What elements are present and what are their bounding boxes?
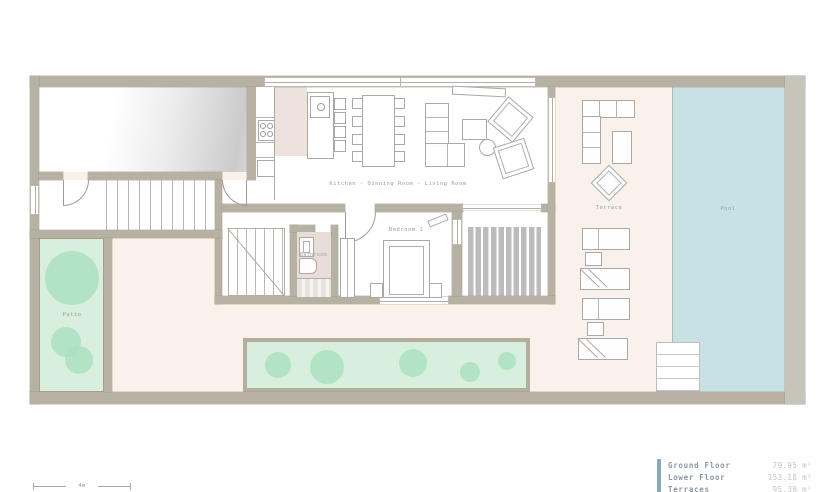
faucet bbox=[317, 103, 325, 111]
wall-left bbox=[30, 76, 39, 404]
driveway-ramp bbox=[39, 87, 247, 172]
sliding-door-terrace bbox=[463, 205, 541, 210]
cushion-line bbox=[426, 117, 448, 118]
sun-lounger-reclined bbox=[578, 338, 628, 360]
nightstand bbox=[370, 283, 383, 298]
patio-tree bbox=[45, 251, 99, 305]
legend-label: Terraces bbox=[668, 485, 710, 492]
garden-tree bbox=[310, 350, 344, 384]
label-patio: Patio bbox=[49, 312, 95, 319]
dining-chair bbox=[394, 116, 405, 127]
side-table bbox=[585, 252, 602, 266]
shower bbox=[297, 278, 331, 297]
wall-bottom bbox=[30, 392, 805, 404]
coffee-table bbox=[462, 119, 487, 140]
wall-right bbox=[785, 76, 805, 404]
garden-tree bbox=[460, 362, 480, 382]
window-bedroom-south bbox=[380, 297, 448, 304]
wall-bath-top bbox=[290, 225, 315, 232]
legend-label: Ground Floor bbox=[668, 461, 731, 470]
terrace-sofa-side bbox=[582, 116, 601, 164]
burner bbox=[267, 123, 273, 129]
burner bbox=[260, 123, 266, 129]
dining-table bbox=[362, 95, 395, 167]
counter-divider bbox=[256, 142, 274, 143]
legend-value: 95.38 m² bbox=[773, 485, 812, 492]
wall-bath-right bbox=[331, 225, 338, 296]
patio-tree bbox=[65, 346, 93, 374]
nightstand bbox=[429, 283, 442, 298]
sink-basin bbox=[303, 241, 310, 253]
bar-stool bbox=[334, 98, 346, 110]
dining-chair bbox=[394, 134, 405, 145]
dining-chair bbox=[394, 151, 405, 162]
wall-divider-a bbox=[222, 204, 345, 212]
cushion-line bbox=[426, 131, 448, 132]
cushion-line bbox=[616, 101, 617, 117]
sun-lounger bbox=[582, 228, 630, 250]
wardrobe bbox=[340, 238, 355, 298]
door-entry-leaf bbox=[63, 180, 64, 205]
door-hall-leaf bbox=[246, 180, 247, 205]
cushion-line bbox=[583, 132, 600, 133]
legend-label: Lower Floor bbox=[668, 473, 725, 482]
scale-bar-tick bbox=[33, 483, 34, 490]
legend-row: Lower Floor 153.18 m² bbox=[668, 472, 812, 483]
window-living-east bbox=[549, 98, 555, 182]
window-bedroom-east bbox=[453, 220, 461, 244]
floor-plan-page: Kitchen - Dinning Room - Living Room Bed… bbox=[0, 0, 819, 492]
cushion-line bbox=[599, 101, 600, 117]
stove bbox=[258, 120, 275, 141]
scale-bar-tick bbox=[130, 483, 131, 490]
wall-bath-left bbox=[290, 225, 297, 296]
cushion-line bbox=[583, 147, 600, 148]
bar-stool bbox=[334, 140, 346, 152]
kitchen-cabinet bbox=[257, 160, 275, 177]
wall-house-bottom-b bbox=[448, 296, 555, 304]
bed bbox=[383, 240, 430, 298]
wardrobe-rail bbox=[347, 239, 348, 297]
garden-tree bbox=[399, 349, 427, 377]
wall-entry-b bbox=[88, 172, 222, 180]
sun-lounger-reclined bbox=[580, 268, 630, 290]
sofa-vertical bbox=[425, 103, 449, 146]
side-table bbox=[587, 322, 604, 336]
entry-staircase bbox=[96, 180, 215, 230]
label-bathroom: Bathroom bbox=[291, 253, 336, 259]
garden-tree bbox=[498, 352, 516, 370]
wall-house-west-lower bbox=[215, 180, 222, 304]
kitchen-floor bbox=[274, 87, 307, 156]
cushion-line bbox=[447, 144, 448, 166]
legend-value: 153.18 m² bbox=[768, 473, 812, 482]
burner bbox=[267, 131, 273, 137]
label-pool: Pool bbox=[705, 206, 751, 213]
window-entry-west bbox=[31, 186, 38, 214]
burner bbox=[260, 131, 266, 137]
lounger-fold bbox=[598, 299, 599, 319]
garden-tree bbox=[265, 352, 291, 378]
pool-steps bbox=[656, 342, 700, 392]
toilet bbox=[299, 258, 317, 274]
wall-under-stairs bbox=[30, 230, 222, 238]
counter-divider bbox=[256, 117, 274, 118]
legend-value: 79.95 m² bbox=[773, 461, 812, 470]
legend-accent-bar bbox=[657, 459, 661, 492]
lounger-fold bbox=[598, 229, 599, 249]
terrace-table-top bbox=[596, 170, 621, 195]
legend-row: Terraces 95.38 m² bbox=[668, 484, 812, 492]
kitchen-counter bbox=[256, 87, 275, 200]
sofa-chaise bbox=[425, 143, 465, 167]
island-sink bbox=[310, 96, 330, 118]
wall-patio-east bbox=[104, 238, 112, 392]
legend-row: Ground Floor 79.95 m² bbox=[668, 460, 812, 471]
dining-chair bbox=[394, 98, 405, 109]
wall-entry-a bbox=[39, 172, 63, 180]
pergola-deck bbox=[468, 227, 541, 298]
window-mullion bbox=[400, 78, 401, 86]
wall-divider-b bbox=[375, 204, 463, 212]
bed-mattress bbox=[389, 246, 424, 295]
counter-divider bbox=[256, 157, 274, 158]
bar-stool bbox=[334, 126, 346, 138]
label-bedroom: Bedroom 1 bbox=[380, 227, 432, 234]
bar-stool bbox=[334, 112, 346, 124]
terrace-lounge-chair bbox=[612, 131, 632, 164]
label-living-room: Kitchen - Dinning Room - Living Room bbox=[300, 181, 496, 188]
wall-house-bottom-a bbox=[215, 296, 380, 304]
label-terrace: Terrace bbox=[584, 205, 634, 212]
sun-lounger bbox=[582, 298, 630, 320]
scale-bar-label: 4m bbox=[66, 482, 98, 490]
armchair-seat bbox=[498, 143, 530, 175]
